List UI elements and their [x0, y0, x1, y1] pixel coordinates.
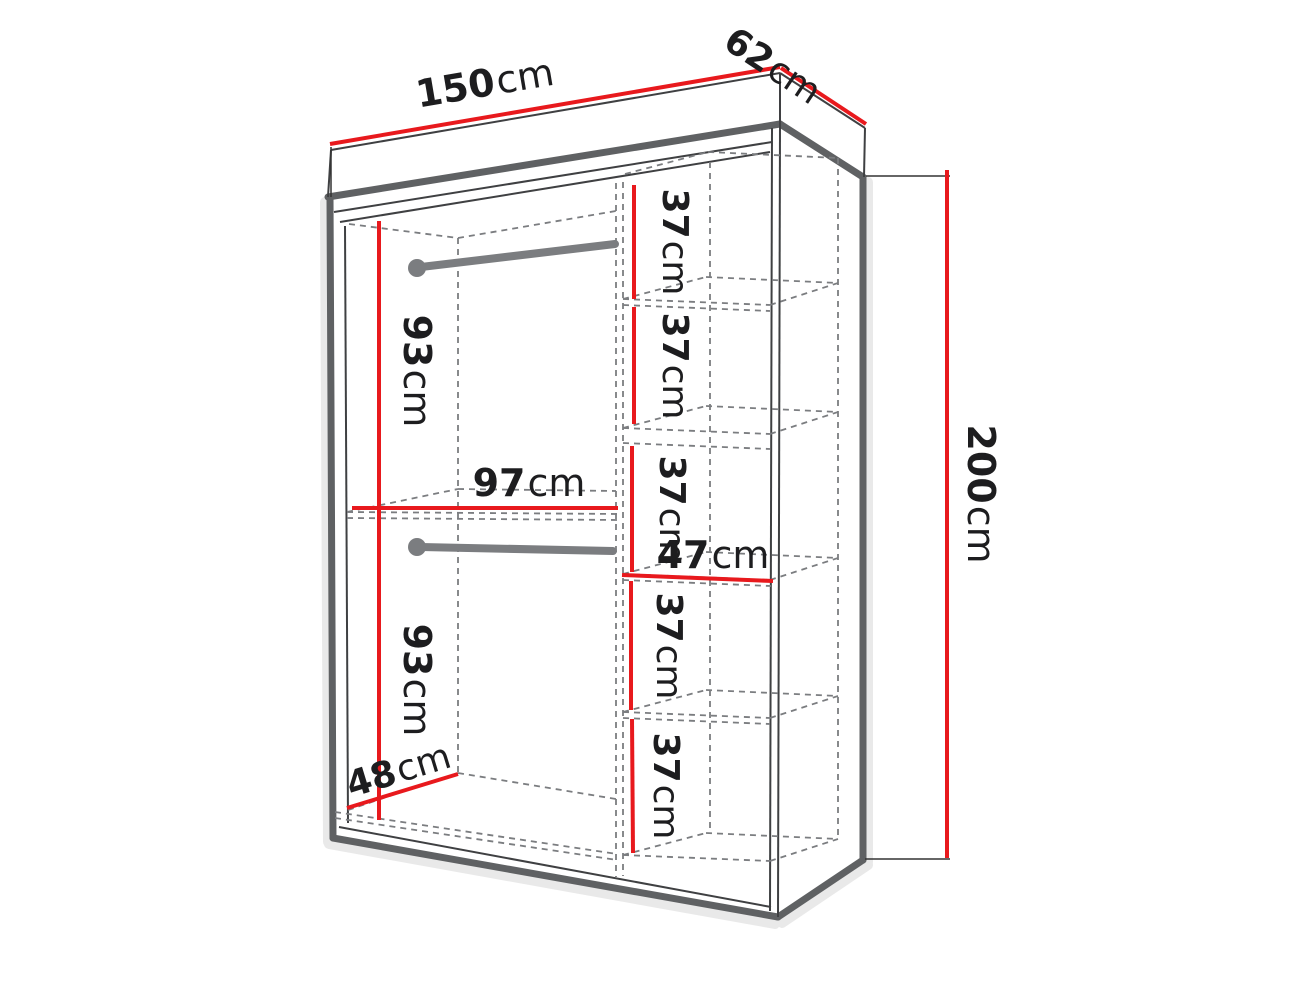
wardrobe-dimension-diagram: 150cm 62cm 200cm 93cm 93cm 97cm 47cm 48c… [0, 0, 1308, 981]
label-shelf-37-5: 37cm [645, 733, 686, 840]
upper-hanging-rail [421, 244, 615, 267]
diagram-canvas: 150cm 62cm 200cm 93cm 93cm 97cm 47cm 48c… [0, 0, 1308, 981]
lower-hanging-rail [421, 547, 613, 551]
lower-rail-end-cap [408, 538, 426, 556]
dimension-lines-red [330, 67, 947, 858]
dim-line-shelf-37-5 [632, 719, 633, 853]
label-depth-62: 62cm [716, 20, 828, 113]
label-hanging-upper-93: 93cm [395, 315, 439, 428]
label-shelf-37-1: 37cm [654, 189, 695, 296]
label-width-150: 150cm [413, 50, 558, 117]
label-height-200: 200cm [959, 424, 1003, 563]
label-depth-48: 48cm [341, 736, 455, 806]
label-shelf-37-2: 37cm [654, 313, 695, 420]
upper-rail-end-cap [408, 259, 426, 277]
label-shelf-37-4: 37cm [648, 593, 689, 700]
label-width-97: 97cm [473, 461, 586, 505]
label-hanging-lower-93: 93cm [395, 624, 439, 737]
label-shelf-37-3: 37cm [651, 456, 692, 563]
